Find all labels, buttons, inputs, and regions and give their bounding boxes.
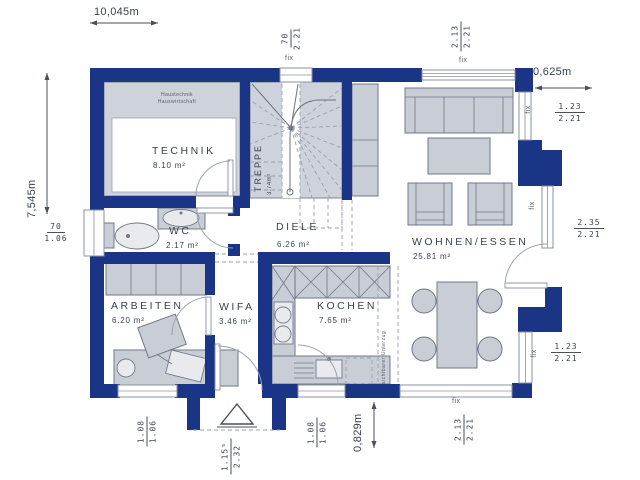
- kitchen-counter-icon: [272, 266, 390, 384]
- room-note-technik: HaustechnikHauswirtschaft: [146, 92, 208, 106]
- room-area-kochen: 7.65 m²: [319, 316, 352, 325]
- armchair-icon: [468, 183, 512, 225]
- window-dim-left-wc: 701.06: [40, 222, 72, 243]
- window: [400, 385, 512, 397]
- fix-label: fix: [459, 57, 468, 64]
- dim-total-height: 7,545m: [26, 72, 38, 218]
- fix-label: fix: [529, 201, 536, 210]
- dim-total-width: 10,045m: [94, 6, 139, 18]
- room-label-diele: DIELE: [276, 221, 319, 233]
- coffee-table-icon: [428, 138, 490, 174]
- window-dim-right-terrace: 2.352.21: [572, 218, 606, 239]
- beam-note: sichtbarer Unterzug: [381, 298, 387, 384]
- fix-label: fix: [452, 398, 461, 405]
- dim-offset-right: 0,625m: [533, 66, 572, 78]
- window: [298, 385, 345, 397]
- room-area-arbeiten: 6.20 m²: [112, 316, 145, 325]
- room-label-kochen: KOCHEN: [317, 300, 377, 312]
- wardrobe-icon: [106, 263, 206, 295]
- room-label-treppe: TREPPE: [253, 128, 263, 192]
- dining-chair-icon: [412, 337, 436, 361]
- window-dim-right-upper: 1.232.21: [553, 102, 587, 123]
- dining-table-icon: [437, 282, 477, 368]
- room-label-arbeiten: ARBEITEN: [111, 300, 184, 312]
- window-dim-bottom-living: 2.132.21: [454, 412, 475, 448]
- window: [118, 385, 177, 397]
- window-dim-top-stairs: 702.21: [281, 21, 302, 57]
- window-dim-right-lower: 1.232.21: [549, 342, 583, 363]
- room-area-technik: 8.10 m²: [153, 161, 186, 170]
- window: [422, 70, 515, 80]
- sofa-icon: [405, 88, 513, 133]
- room-area-wohnen-essen: 25.81 m²: [413, 252, 451, 261]
- window-dim-bottom-kitchen: 1.081.06: [307, 415, 328, 451]
- cabinet-icon: [352, 84, 378, 196]
- dining-chair-icon: [478, 289, 502, 313]
- window: [542, 186, 553, 248]
- room-area-treppe: 3.74m²: [267, 145, 273, 195]
- window: [84, 210, 104, 256]
- toilet-icon: [104, 223, 159, 249]
- window: [519, 92, 531, 140]
- entrance-porch: [193, 404, 280, 430]
- room-area-diele: 6.26 m²: [277, 240, 310, 249]
- fix-label: fix: [525, 105, 532, 114]
- dining-chair-icon: [478, 337, 502, 361]
- room-label-wohnen-essen: WOHNEN/ESSEN: [412, 236, 528, 248]
- window-dim-top-living: 2.132.21: [451, 19, 472, 55]
- room-area-wifa: 3.46 m²: [219, 317, 252, 326]
- kitchen-sink-icon: [316, 360, 342, 378]
- room-area-wc: 2.17 m²: [166, 241, 199, 250]
- floor-plan: 10,045m 7,545m 0,625m 0,829m 702.21 2.13…: [0, 0, 640, 480]
- room-label-technik: TECHNIK: [152, 145, 216, 157]
- armchair-icon: [408, 183, 452, 225]
- room-label-wifa: WIFA: [219, 301, 255, 313]
- door-dim-entrance: 1.15⁵2.32: [221, 439, 242, 475]
- window-dim-bottom-office: 1.081.06: [137, 414, 158, 450]
- fix-label: fix: [531, 349, 538, 358]
- door-terrace: [505, 244, 547, 288]
- dim-offset-bottom: 0,829m: [352, 400, 364, 452]
- room-label-wc: WC: [169, 225, 192, 237]
- fix-label: fix: [285, 55, 294, 62]
- stairs: [250, 82, 342, 228]
- dining-set-icon: [412, 282, 502, 368]
- dining-chair-icon: [412, 289, 436, 313]
- window: [280, 68, 312, 82]
- entrance-triangle-icon: [221, 404, 253, 424]
